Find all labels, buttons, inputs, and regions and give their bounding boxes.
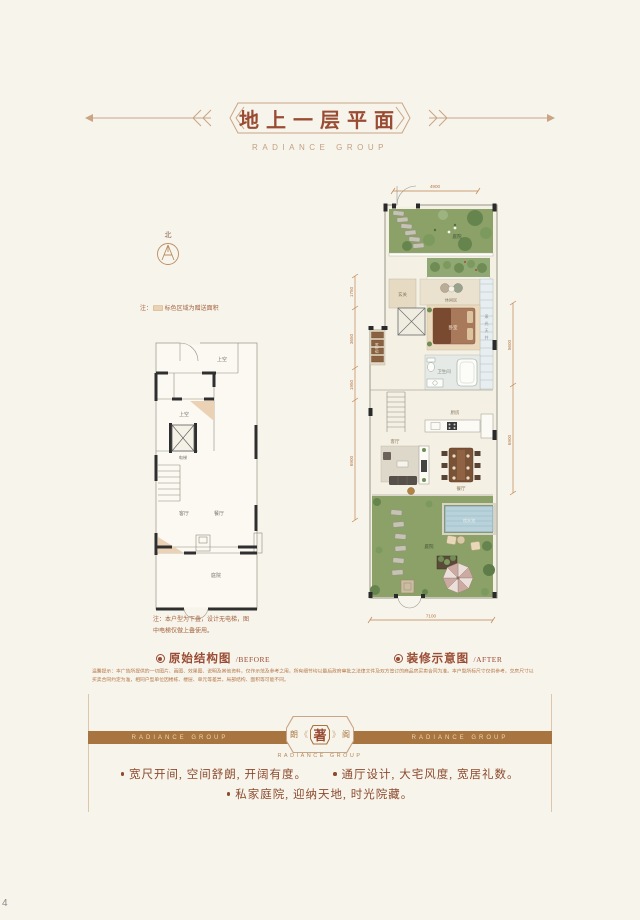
- after-caption-en: /AFTER: [474, 655, 503, 664]
- after-caption: 装修示意图 /AFTER: [378, 649, 518, 667]
- pool: 戏水池: [443, 504, 495, 534]
- before-caption-text: 原始结构图: [169, 653, 232, 665]
- bullet-text-3: 私家庭院, 迎纳天地, 时光院藏。: [235, 786, 413, 802]
- room-label-kitchen: 厨房: [451, 409, 460, 416]
- bullet-item-3: 私家庭院, 迎纳天地, 时光院藏。: [227, 786, 414, 802]
- room-label-courtyard: 庭院: [211, 572, 221, 579]
- bathroom: 卫生间: [425, 355, 480, 390]
- room-label-void-mid: 上空: [179, 411, 189, 418]
- room-label-dining: 餐厅: [457, 485, 466, 492]
- dim-left-1: 1750: [349, 286, 354, 297]
- disclaimer-line2: 买卖合同约定为准，相同户型单位因楼栋、楼层、单元等差异，局部结构、面积等可能不同…: [92, 675, 548, 683]
- caption-bullet-icon: [156, 654, 165, 663]
- lightwell-char-3: 天: [485, 328, 489, 333]
- page-number: 4: [2, 898, 8, 909]
- garden-bottom: 戏水池: [370, 496, 495, 597]
- banner-sub-text: RADIANCE GROUP: [0, 753, 640, 759]
- compass: 北: [150, 230, 186, 273]
- room-label-elevator: 电梯: [179, 454, 187, 461]
- dim-left-4: 6900: [349, 455, 354, 466]
- room-label-lounge: 休闲区: [445, 297, 458, 304]
- room-label-entry: 玄关: [398, 291, 407, 298]
- dim-right-2: 6900: [507, 434, 512, 445]
- wardrobe: 衣帽间: [370, 330, 385, 365]
- bullet-dot-icon: [121, 772, 125, 776]
- planting-strip: [427, 258, 490, 280]
- dim-top: 4900: [430, 184, 441, 189]
- after-caption-text: 装修示意图: [407, 653, 470, 665]
- legend-note-text: 标色区域为赠送面积: [165, 305, 219, 312]
- before-caption: 原始结构图 /BEFORE: [143, 649, 283, 667]
- banner-left-text: RADIANCE GROUP: [88, 735, 272, 741]
- bullet-dot-icon: [333, 772, 337, 776]
- caption-bullet-icon: [394, 654, 403, 663]
- bullet-item-2: 通厅设计, 大宅风度, 宽居礼数。: [333, 766, 520, 782]
- gift-area-swatch-icon: [153, 306, 163, 311]
- before-note-line1: 注：本户型为下叠，设计无电梯，图: [153, 614, 249, 625]
- room-label-bath: 卫生间: [437, 368, 451, 375]
- before-floor-plan: 上空 上空 电梯 客厅 餐厅 庭院: [150, 337, 265, 622]
- emblem-core-frame: 著: [310, 725, 330, 745]
- room-label-garden-top: 庭院: [453, 233, 462, 240]
- dim-left-2: 3650: [349, 333, 354, 344]
- brand-subtitle: RADIANCE GROUP: [85, 143, 555, 152]
- before-plan-outline: [156, 343, 257, 609]
- banner-right-text: RADIANCE GROUP: [368, 735, 552, 741]
- bullet-text-1: 宽尺开间, 空间舒朗, 开阔有度。: [129, 766, 307, 782]
- garden-top: 庭院: [389, 209, 493, 253]
- legend-note-prefix: 注：: [140, 305, 152, 312]
- lightwell-char-2: 光: [485, 320, 489, 326]
- umbrella: [443, 563, 473, 593]
- dim-right-1: 5600: [507, 339, 512, 350]
- compass-icon: [153, 240, 183, 268]
- after-courtyard-door: [398, 596, 421, 608]
- bullet-row-1: 宽尺开间, 空间舒朗, 开阔有度。 通厅设计, 大宅风度, 宽居礼数。: [0, 766, 640, 782]
- emblem-left-char: 朗: [290, 729, 298, 740]
- room-label-pool: 戏水池: [463, 517, 476, 524]
- light-well: 采 光 天 井: [480, 279, 493, 389]
- lightwell-char-4: 井: [485, 334, 489, 340]
- room-label-void-top: 上空: [217, 356, 227, 363]
- bullet-item-1: 宽尺开间, 空间舒朗, 开阔有度。: [121, 766, 308, 782]
- room-label-living: 客厅: [179, 510, 189, 517]
- room-label-wardrobe: 衣帽间: [374, 342, 379, 353]
- room-label-dining: 餐厅: [214, 510, 224, 517]
- compass-north-label: 北: [150, 230, 186, 240]
- before-caption-en: /BEFORE: [236, 655, 270, 664]
- after-floor-plan: 4900 1750 3650 1950 6900 5600 6900 7100: [345, 180, 535, 650]
- bedroom: 卧室: [427, 305, 480, 350]
- dim-bottom: 7100: [426, 614, 437, 619]
- emblem-deco-left: 《: [300, 729, 308, 740]
- room-label-living: 客厅: [391, 438, 400, 445]
- disclaimer-line1: 温馨提示：本广告所提供的一切图片、画图、效果图、说明及其他资料，仅作示范及参考之…: [92, 667, 548, 675]
- bullet-text-2: 通厅设计, 大宅风度, 宽居礼数。: [342, 766, 520, 782]
- dim-left-3: 1950: [349, 379, 354, 390]
- north-wall-band: [389, 253, 493, 256]
- room-label-bedroom: 卧室: [449, 324, 458, 331]
- after-entry-door: [397, 186, 416, 207]
- lightwell-char-1: 采: [485, 313, 489, 319]
- emblem-right-char: 阁: [342, 729, 350, 740]
- before-note: 注：本户型为下叠，设计无电梯，图 中电梯仅做上叠使用。: [153, 614, 249, 637]
- emblem-deco-right: 》: [332, 729, 340, 740]
- lounge-room: 休闲区: [420, 279, 480, 305]
- legend-note: 注：标色区域为赠送面积: [140, 303, 219, 312]
- after-elevator-shaft: [398, 308, 425, 335]
- brand-emblem: 朗 《 著 》 阁: [286, 716, 354, 753]
- before-elevator-shaft: [172, 425, 194, 451]
- bullet-row-2: 私家庭院, 迎纳天地, 时光院藏。: [0, 786, 640, 802]
- disclaimer: 温馨提示：本广告所提供的一切图片、画图、效果图、说明及其他资料，仅作示范及参考之…: [92, 667, 548, 684]
- room-label-garden-bottom: 庭院: [425, 543, 434, 550]
- entry-room: 玄关: [389, 279, 416, 308]
- brochure-page: 地上一层平面 RADIANCE GROUP 北 注：标色区域为赠送面积: [0, 0, 640, 920]
- before-note-line2: 中电梯仅做上叠使用。: [153, 625, 249, 636]
- bullet-dot-icon: [227, 792, 231, 796]
- page-title: 地上一层平面: [85, 104, 555, 133]
- emblem-center-char: 著: [311, 726, 329, 744]
